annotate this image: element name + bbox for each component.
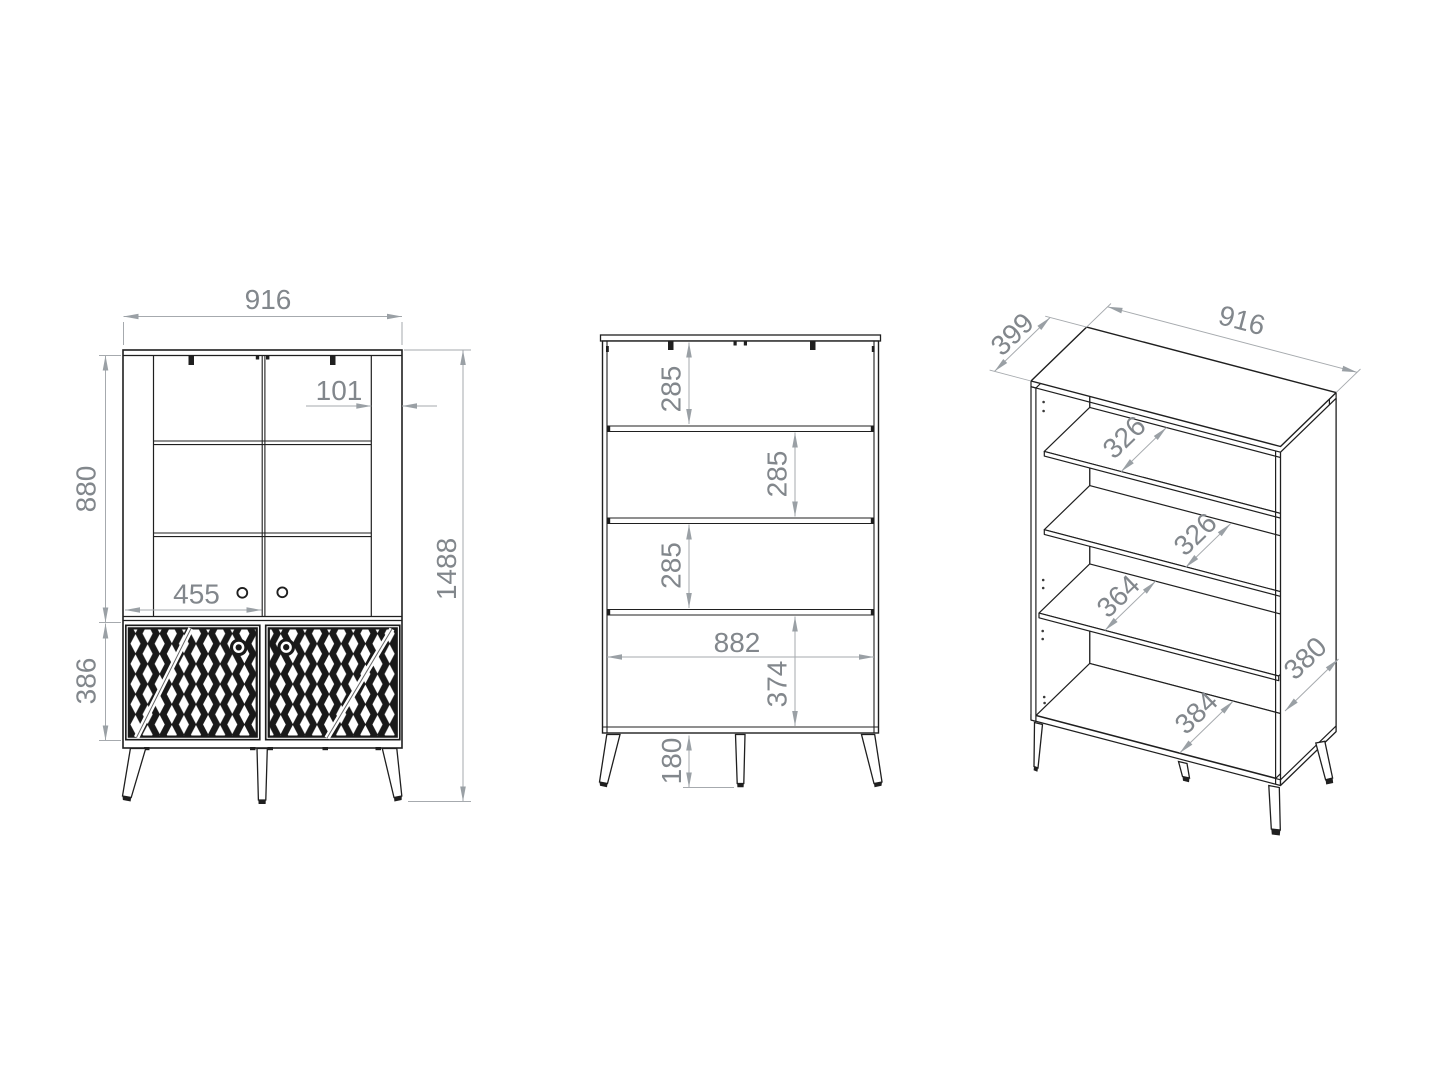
svg-text:1488: 1488: [431, 538, 462, 600]
svg-text:916: 916: [245, 284, 292, 315]
svg-text:285: 285: [761, 451, 792, 498]
svg-text:285: 285: [655, 366, 686, 413]
svg-text:455: 455: [173, 578, 220, 609]
svg-text:101: 101: [316, 375, 363, 406]
svg-text:882: 882: [714, 627, 761, 658]
svg-text:285: 285: [655, 542, 686, 589]
svg-text:386: 386: [70, 658, 101, 705]
svg-text:880: 880: [70, 466, 101, 513]
svg-text:374: 374: [761, 661, 792, 708]
svg-text:180: 180: [656, 738, 687, 785]
